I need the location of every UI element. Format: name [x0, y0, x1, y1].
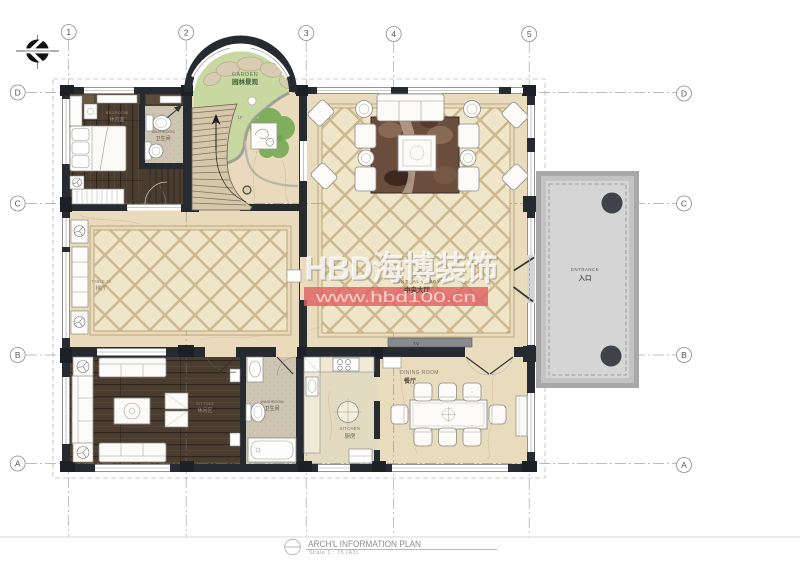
svg-text:B: B: [15, 350, 21, 360]
svg-text:休息室: 休息室: [109, 116, 124, 123]
svg-text:入口: 入口: [578, 274, 592, 282]
svg-text:C: C: [681, 199, 687, 209]
svg-text:园林景观: 园林景观: [232, 77, 259, 86]
svg-text:5: 5: [527, 29, 532, 39]
svg-text:1F: 1F: [237, 115, 243, 120]
svg-text:餐厅: 餐厅: [403, 377, 416, 385]
svg-text:www.hbd100.cn: www.hbd100.cn: [314, 290, 476, 306]
svg-text:ENTRANCE: ENTRANCE: [571, 267, 599, 272]
svg-text:C: C: [15, 199, 21, 209]
svg-text:TABLE 19: TABLE 19: [91, 279, 112, 284]
svg-text:1: 1: [66, 27, 71, 37]
svg-text:A: A: [681, 460, 687, 470]
svg-text:卫生间: 卫生间: [155, 135, 170, 142]
svg-text:D: D: [681, 89, 687, 99]
svg-text:DINING ROOM: DINING ROOM: [400, 370, 439, 376]
svg-text:BEDROOM: BEDROOM: [106, 110, 129, 115]
svg-text:WASHROOM: WASHROOM: [151, 130, 174, 134]
svg-text:卫生间: 卫生间: [264, 405, 279, 412]
svg-text:3: 3: [304, 28, 309, 38]
svg-text:梯厅: 梯厅: [95, 284, 107, 292]
svg-text:A: A: [15, 459, 21, 469]
svg-text:GARDEN: GARDEN: [232, 72, 259, 78]
svg-text:SITTING: SITTING: [196, 401, 214, 406]
svg-text:2: 2: [184, 28, 189, 38]
svg-text:WASHROOM: WASHROOM: [260, 400, 283, 404]
svg-text:ARCH'L INFORMATION PLAN: ARCH'L INFORMATION PLAN: [308, 539, 421, 550]
svg-text:4: 4: [391, 29, 396, 39]
svg-text:T.V.: T.V.: [413, 341, 420, 346]
svg-text:D: D: [15, 88, 21, 98]
svg-text:休闲区: 休闲区: [197, 407, 212, 414]
svg-text:Scale 1 : 75 (A3): Scale 1 : 75 (A3): [309, 550, 358, 556]
svg-text:B: B: [681, 350, 687, 360]
svg-text:KITCHEN: KITCHEN: [340, 426, 360, 431]
svg-text:HBD海博装饰: HBD海博装饰: [305, 250, 498, 287]
svg-text:厨房: 厨房: [344, 432, 356, 440]
